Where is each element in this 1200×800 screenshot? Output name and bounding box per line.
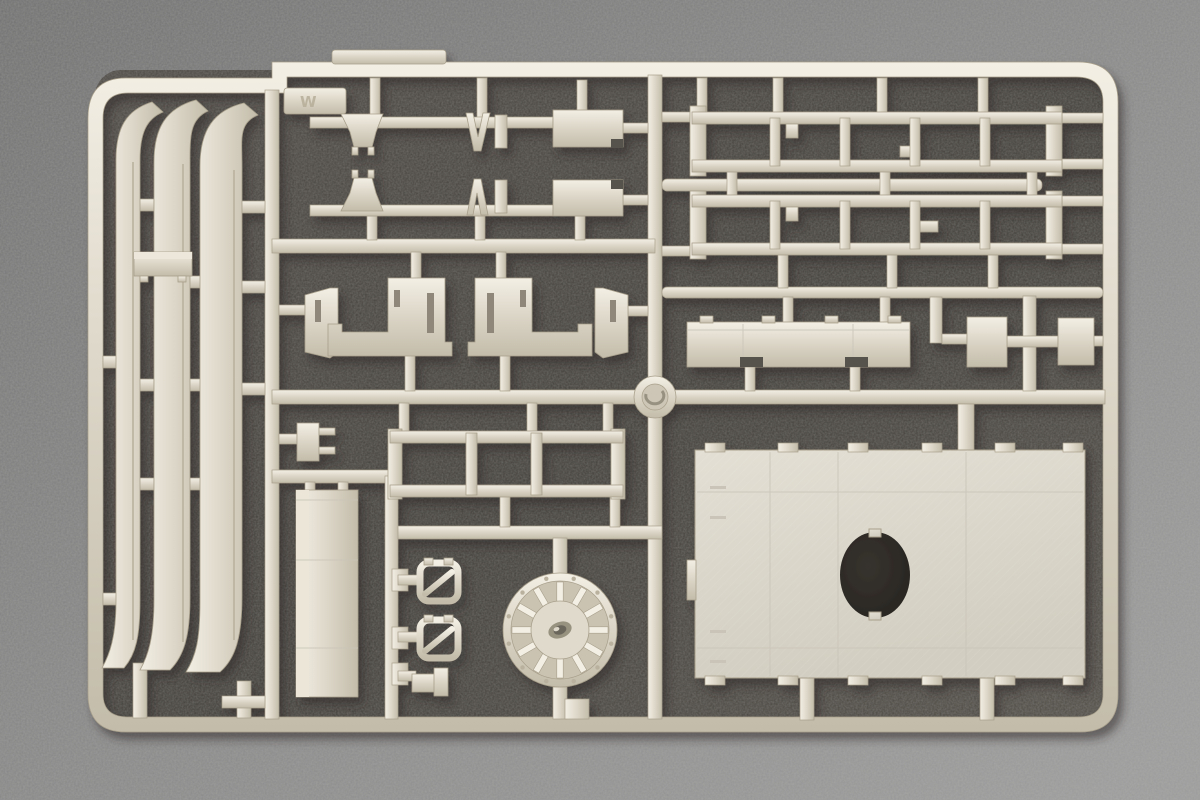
road-wheel-part bbox=[503, 573, 617, 687]
wheel-spoke bbox=[557, 582, 563, 603]
sprue-gate bbox=[773, 78, 783, 113]
sprue-gate bbox=[930, 297, 942, 343]
sprue-gate bbox=[887, 254, 897, 288]
panel-mark bbox=[710, 516, 726, 519]
brand-tab bbox=[332, 50, 446, 64]
side-plate-right bbox=[595, 288, 628, 358]
sprue-gate bbox=[496, 252, 506, 279]
runner-hub-boss bbox=[634, 376, 676, 418]
block-notch bbox=[611, 180, 623, 189]
sprue-gate bbox=[628, 306, 648, 316]
panel-tooth bbox=[922, 676, 942, 685]
panel-tooth bbox=[705, 443, 725, 452]
sprue-gate bbox=[783, 297, 793, 323]
sprue-gate bbox=[877, 78, 887, 113]
panel-tooth bbox=[705, 676, 725, 685]
sprue-gate bbox=[1062, 244, 1103, 254]
sprue-photo-canvas: W bbox=[0, 0, 1200, 800]
deck-panel-part bbox=[687, 443, 1085, 685]
runner-horizontal-ladders bbox=[662, 179, 1042, 191]
bracket-slot bbox=[520, 290, 526, 307]
rim-bolt-dot bbox=[507, 614, 511, 618]
panel-tooth bbox=[778, 676, 798, 685]
sprue-gate bbox=[610, 496, 620, 527]
sprue-gate bbox=[662, 112, 692, 122]
ladder-rung bbox=[770, 118, 780, 166]
runner-horizontal-left-low bbox=[272, 470, 398, 483]
sprue-gate bbox=[958, 404, 974, 451]
rim-bolt-dot bbox=[595, 665, 599, 669]
sprue-gate bbox=[500, 355, 510, 391]
wheel-spoke bbox=[512, 627, 533, 633]
panel-tooth bbox=[1063, 443, 1083, 452]
ladder-rung bbox=[910, 118, 920, 166]
block-notch bbox=[611, 139, 623, 148]
panel-tooth bbox=[995, 443, 1015, 452]
sprue-gate bbox=[800, 676, 814, 720]
panel-tooth bbox=[778, 443, 798, 452]
panel-side-tab bbox=[687, 560, 696, 600]
ladder-hook-tab bbox=[920, 221, 938, 232]
ladder-rung bbox=[840, 201, 850, 249]
funnel-foot bbox=[352, 147, 358, 155]
sprue-gate bbox=[565, 699, 589, 719]
runner-rod-below-ladders bbox=[662, 287, 1103, 298]
box-part-1 bbox=[967, 317, 1007, 367]
box-part-2 bbox=[1058, 318, 1094, 365]
sprue-gate bbox=[279, 305, 305, 315]
panel-tooth bbox=[1063, 676, 1083, 685]
panel-mark bbox=[710, 630, 726, 633]
panel-tooth bbox=[922, 443, 942, 452]
sprue-gate bbox=[980, 676, 994, 720]
ladder-rung bbox=[770, 201, 780, 249]
sprue-gate bbox=[475, 216, 485, 240]
ladder-hook-tab bbox=[786, 207, 798, 221]
ladder-rung bbox=[910, 201, 920, 249]
sprue-gate bbox=[778, 254, 788, 288]
rim-bolt-dot bbox=[544, 679, 548, 683]
panel-tooth bbox=[848, 676, 868, 685]
sprue-gate bbox=[411, 252, 421, 279]
storage-box-part bbox=[296, 490, 358, 697]
sprue-gate bbox=[745, 366, 755, 391]
sprue-gate bbox=[577, 80, 587, 112]
runner-horizontal-middle bbox=[272, 390, 1105, 404]
runner-horizontal-upper bbox=[272, 239, 655, 253]
plate-slot bbox=[610, 300, 616, 322]
bracket-slot bbox=[394, 290, 400, 307]
sprue-gate bbox=[662, 246, 692, 256]
runner-vertical-left bbox=[265, 90, 279, 719]
sprue-gate bbox=[399, 403, 409, 432]
panel-mark bbox=[710, 660, 726, 663]
rim-bolt-dot bbox=[609, 642, 613, 646]
rim-bolt-dot bbox=[609, 614, 613, 618]
sprue-letter-marking: W bbox=[300, 93, 319, 111]
sprue-gate bbox=[1007, 336, 1058, 347]
sprue-gate bbox=[367, 216, 377, 240]
sprue-gate bbox=[988, 254, 998, 288]
funnel-foot bbox=[368, 170, 374, 178]
sprue-gate bbox=[1062, 196, 1103, 206]
rim-bolt-dot bbox=[520, 665, 524, 669]
ladder-rung bbox=[840, 118, 850, 166]
sprue-gate bbox=[623, 195, 648, 205]
panel-hole-tab bbox=[869, 612, 881, 620]
plate-slot bbox=[315, 300, 321, 322]
panel-hole-tab bbox=[869, 529, 881, 537]
ladder-rung bbox=[980, 118, 990, 166]
sprue-gate bbox=[575, 216, 585, 240]
sprue-gate bbox=[405, 355, 415, 391]
rim-bolt-dot bbox=[544, 577, 548, 581]
slat-tray-part bbox=[687, 316, 910, 367]
panel-mark bbox=[710, 486, 726, 489]
sprue-gate bbox=[527, 403, 537, 432]
wheel-spoke bbox=[557, 657, 563, 678]
sprue-gate bbox=[477, 78, 487, 118]
runner-horizontal-mid-low bbox=[385, 526, 662, 539]
rim-bolt-dot bbox=[520, 590, 524, 594]
ladder-rung bbox=[980, 201, 990, 249]
sprue-gate bbox=[370, 78, 380, 118]
sprue-gate bbox=[1062, 113, 1103, 123]
bracket-slot bbox=[427, 293, 434, 333]
wheel-spoke bbox=[587, 627, 608, 633]
sprue-gate bbox=[603, 403, 613, 432]
sprue-gate bbox=[942, 334, 967, 344]
bracket-slot bbox=[487, 293, 494, 333]
rim-bolt-dot bbox=[507, 642, 511, 646]
panel-tooth bbox=[848, 443, 868, 452]
sprue-gate bbox=[623, 123, 648, 133]
sprue-gate bbox=[222, 696, 265, 708]
fender-strips bbox=[102, 100, 258, 672]
pin-bar-part-upper bbox=[495, 115, 507, 148]
photo-of-model-kit-sprue: W bbox=[0, 0, 1200, 800]
sprue-gate bbox=[553, 538, 567, 575]
sprue-gate bbox=[1093, 336, 1103, 346]
panel-tooth bbox=[995, 676, 1015, 685]
funnel-foot bbox=[352, 170, 358, 178]
sprue-gate bbox=[279, 434, 297, 444]
sprue-gate bbox=[1062, 159, 1103, 169]
funnel-foot bbox=[368, 147, 374, 155]
sprue-gate bbox=[133, 663, 147, 718]
ladder-hook-tab bbox=[786, 124, 798, 138]
sprue-gate bbox=[500, 496, 510, 527]
rim-bolt-dot bbox=[572, 679, 576, 683]
rim-bolt-dot bbox=[595, 590, 599, 594]
pin-bar-part-lower bbox=[495, 180, 507, 213]
sprue-gate bbox=[850, 366, 860, 391]
sprue-gate bbox=[978, 78, 988, 113]
panel-hole bbox=[840, 532, 910, 618]
rim-bolt-dot bbox=[572, 577, 576, 581]
